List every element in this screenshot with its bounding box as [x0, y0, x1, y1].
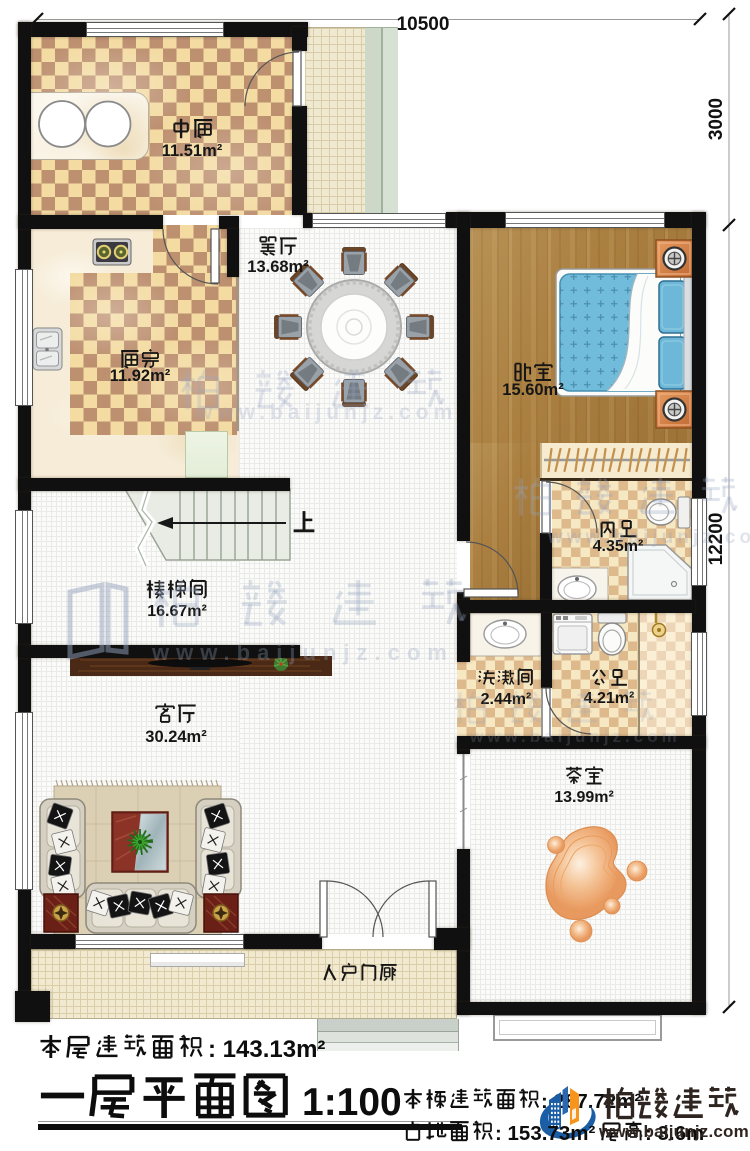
- svg-text:3000: 3000: [706, 98, 727, 140]
- svg-text:www.baijunjz.com: www.baijunjz.com: [469, 727, 681, 746]
- svg-text:2.44m²: 2.44m²: [481, 691, 532, 708]
- svg-text:11.51m²: 11.51m²: [162, 142, 223, 160]
- svg-text:11.92m²: 11.92m²: [110, 367, 171, 385]
- svg-text:: 153.73m²: : 153.73m²: [495, 1122, 595, 1145]
- svg-text:15.60m²: 15.60m²: [502, 381, 564, 399]
- svg-text:: 143.13m²: : 143.13m²: [208, 1036, 325, 1063]
- svg-text:www.baijunjz.com: www.baijunjz.com: [598, 1122, 749, 1141]
- svg-text:www.baijunjz.com: www.baijunjz.com: [547, 527, 750, 548]
- svg-text:www.baijunjz.com: www.baijunjz.com: [195, 401, 457, 424]
- svg-text:30.24m²: 30.24m²: [145, 728, 207, 746]
- svg-text:13.68m²: 13.68m²: [247, 258, 309, 276]
- svg-text:10500: 10500: [397, 14, 450, 35]
- svg-text:www.baijunjz.com: www.baijunjz.com: [151, 640, 454, 665]
- svg-text:13.99m²: 13.99m²: [554, 789, 614, 806]
- svg-text:1:100: 1:100: [302, 1081, 402, 1124]
